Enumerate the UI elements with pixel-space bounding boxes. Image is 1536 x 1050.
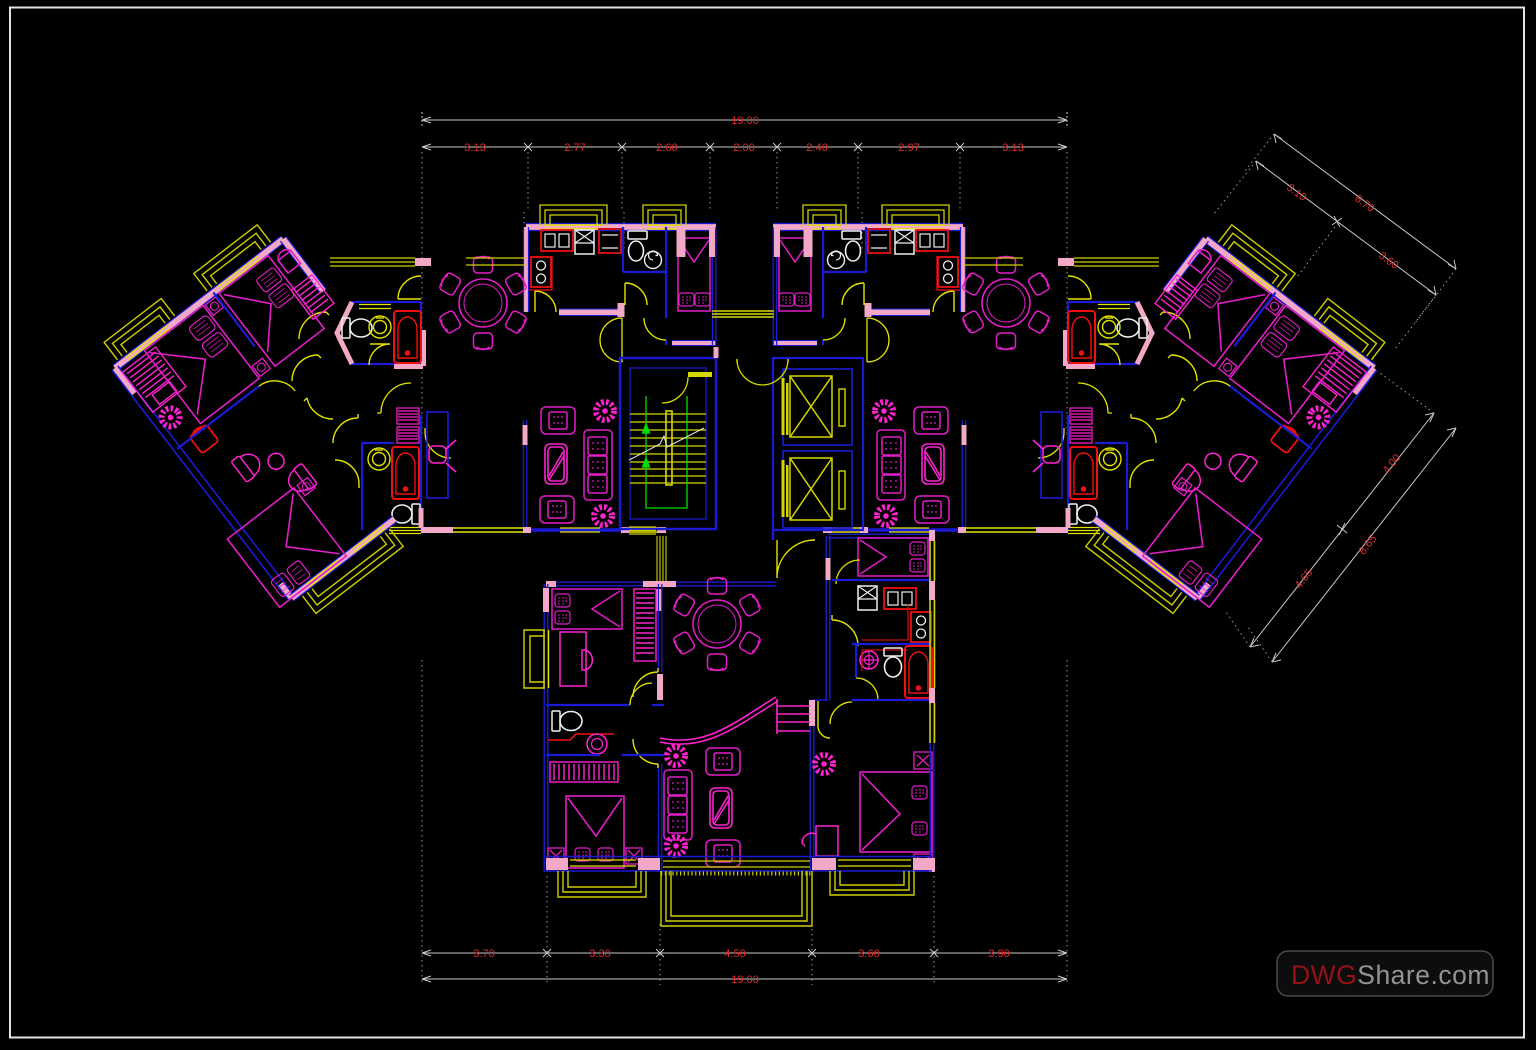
svg-text:3.90: 3.90	[988, 948, 1009, 960]
svg-text:2.00: 2.00	[733, 142, 754, 154]
svg-text:2.40: 2.40	[806, 142, 827, 154]
svg-text:19.00: 19.00	[731, 974, 759, 986]
svg-text:3.70: 3.70	[473, 948, 494, 960]
svg-text:3.13: 3.13	[464, 142, 485, 154]
svg-text:19.00: 19.00	[731, 115, 759, 127]
svg-text:3.60: 3.60	[858, 948, 879, 960]
svg-text:3.13: 3.13	[1002, 142, 1023, 154]
svg-text:DWGShare.com: DWGShare.com	[1291, 960, 1490, 990]
svg-text:2.97: 2.97	[898, 142, 919, 154]
svg-text:2.77: 2.77	[564, 142, 585, 154]
svg-text:2.60: 2.60	[656, 142, 677, 154]
svg-text:4.50: 4.50	[724, 948, 745, 960]
svg-text:3.30: 3.30	[589, 948, 610, 960]
